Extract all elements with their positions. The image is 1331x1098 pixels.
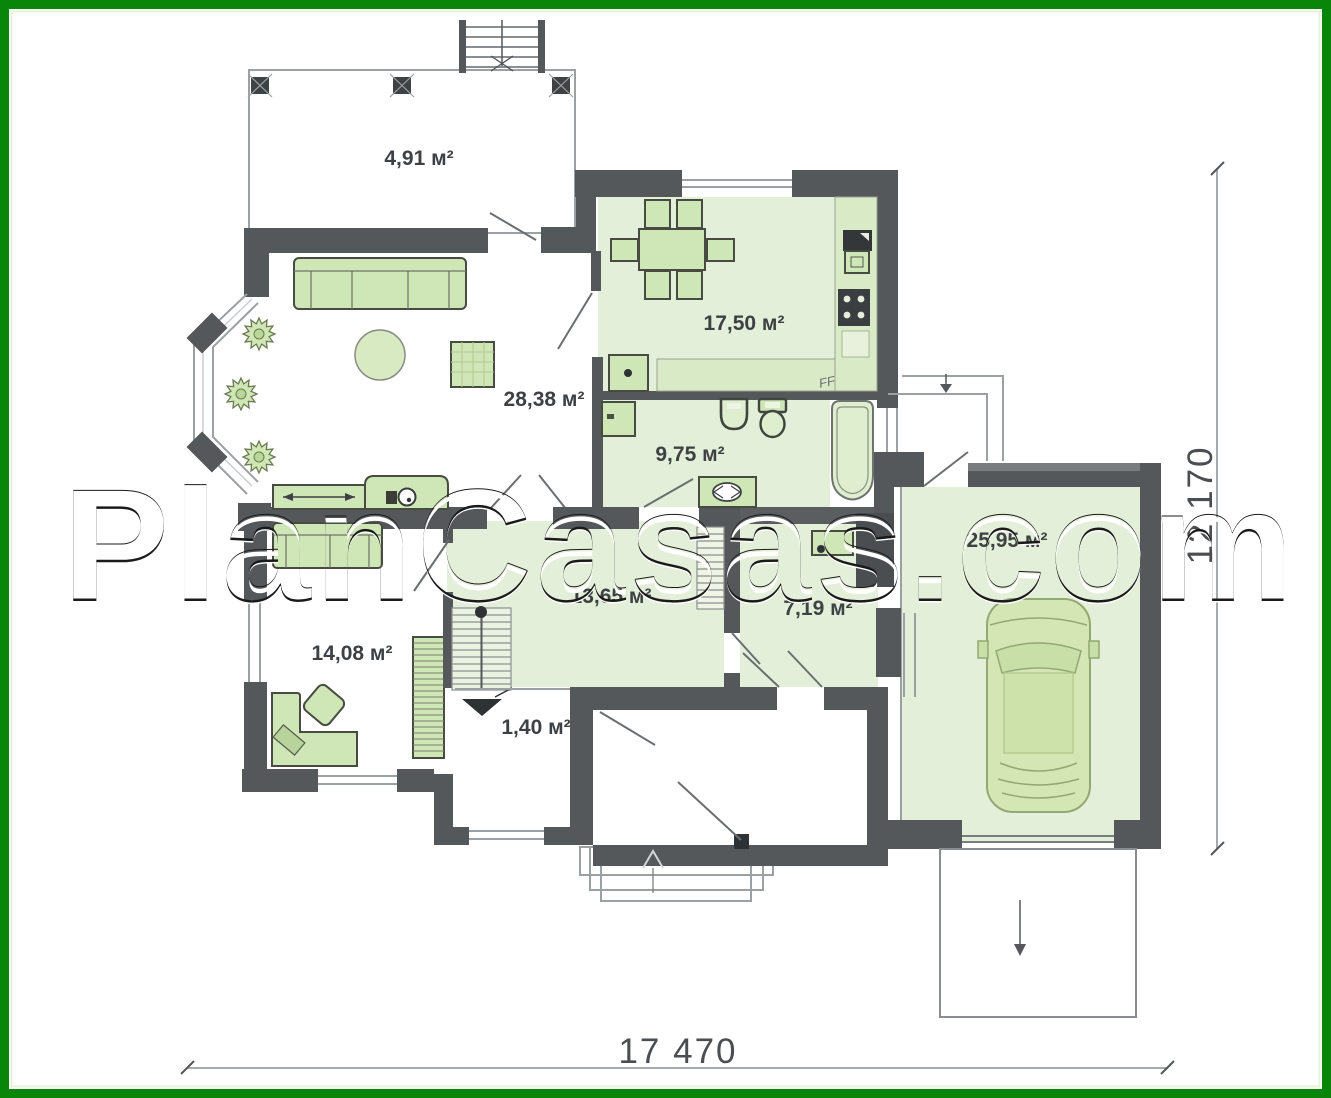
svg-text:14,08 м²: 14,08 м² <box>312 642 393 665</box>
svg-text:1,40 м²: 1,40 м² <box>501 716 570 739</box>
svg-text:28,38 м²: 28,38 м² <box>504 388 585 411</box>
svg-text:17 470: 17 470 <box>618 1032 737 1071</box>
svg-text:4,91 м²: 4,91 м² <box>384 147 453 170</box>
svg-text:17,50 м²: 17,50 м² <box>704 312 785 335</box>
